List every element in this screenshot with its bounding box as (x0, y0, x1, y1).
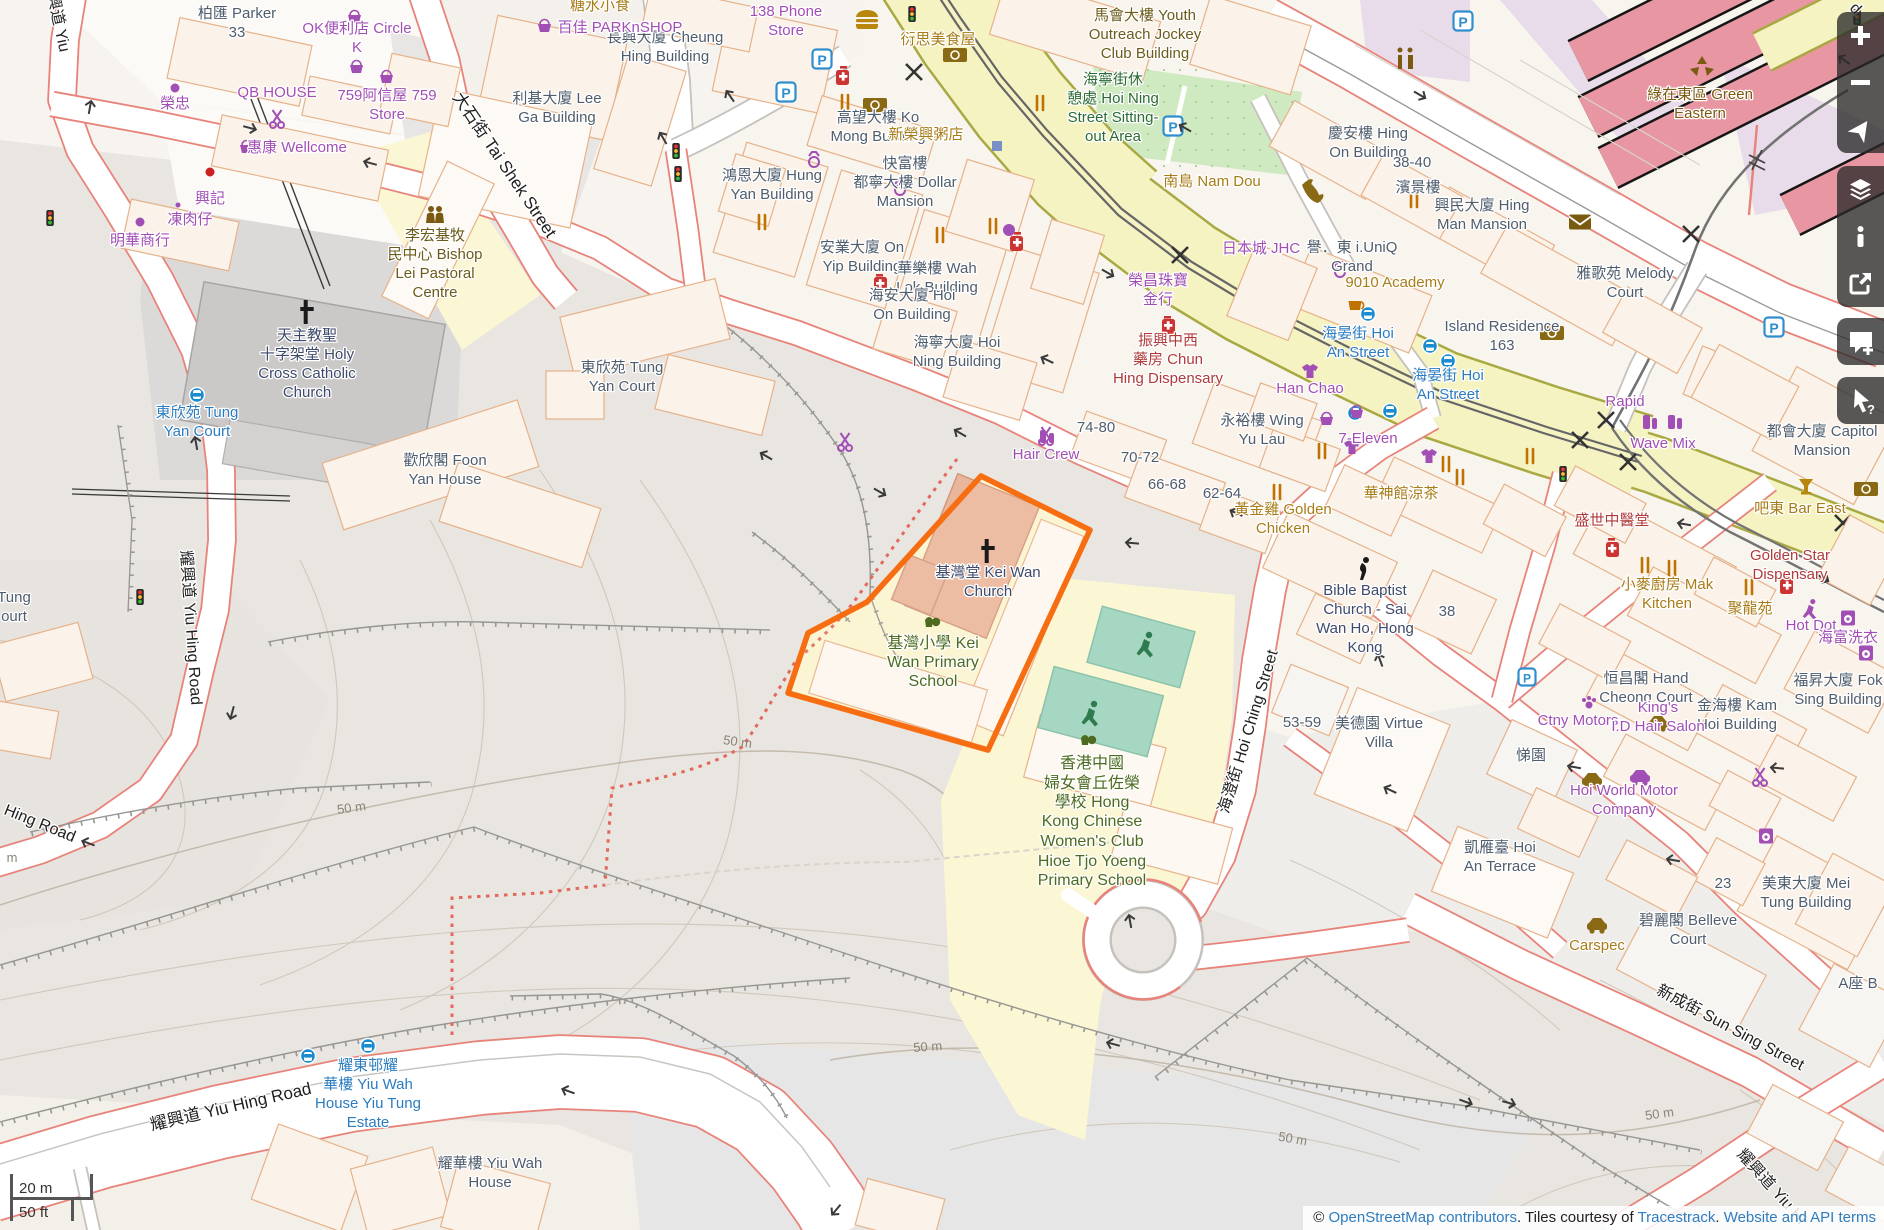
svg-text:憩處 Hoi Ning: 憩處 Hoi Ning (1067, 90, 1159, 107)
svg-text:Club Building: Club Building (1101, 45, 1189, 62)
svg-text:An Street: An Street (1417, 386, 1480, 403)
svg-text:Ning Building: Ning Building (913, 353, 1001, 370)
svg-text:金海樓 Kam: 金海樓 Kam (1697, 697, 1777, 714)
svg-text:Church: Church (283, 384, 331, 401)
svg-text:?: ? (1867, 402, 1875, 416)
svg-text:美德園 Virtue: 美德園 Virtue (1335, 714, 1423, 732)
svg-text:馬會大樓 Youth: 馬會大樓 Youth (1094, 7, 1196, 24)
svg-text:A座 B: A座 B (1838, 975, 1877, 992)
svg-text:Dispensary: Dispensary (1752, 566, 1828, 583)
svg-text:Island Residence: Island Residence (1444, 318, 1559, 335)
svg-text:榮昌珠寶: 榮昌珠寶 (1128, 271, 1188, 289)
svg-text:振興中西: 振興中西 (1138, 332, 1198, 349)
svg-text:Chicken: Chicken (1256, 520, 1310, 537)
svg-text:23: 23 (1715, 875, 1732, 892)
svg-text:138 Phone: 138 Phone (750, 3, 823, 20)
svg-text:Yan House: Yan House (408, 471, 481, 488)
svg-text:I.D Hair Salon: I.D Hair Salon (1611, 718, 1704, 735)
svg-text:Yip Building: Yip Building (823, 258, 902, 275)
svg-text:海晏街 Hoi: 海晏街 Hoi (1412, 367, 1484, 384)
svg-text:P: P (1769, 320, 1778, 336)
svg-text:Hing Dispensary: Hing Dispensary (1113, 370, 1224, 387)
svg-text:Church: Church (964, 583, 1012, 600)
svg-text:House Yiu Tung: House Yiu Tung (315, 1095, 421, 1112)
svg-text:歡欣閣 Foon: 歡欣閣 Foon (403, 452, 486, 469)
svg-text:凍肉仔: 凍肉仔 (167, 211, 212, 228)
svg-text:海寧大廈 Hoi: 海寧大廈 Hoi (914, 333, 1001, 351)
svg-text:An Terrace: An Terrace (1464, 858, 1536, 875)
svg-text:Mansion: Mansion (1794, 442, 1851, 459)
svg-text:Street Sitting-: Street Sitting- (1068, 109, 1159, 126)
svg-text:Cross Catholic: Cross Catholic (258, 365, 356, 382)
svg-text:out Area: out Area (1085, 128, 1142, 145)
svg-text:華樓 Yiu Wah: 華樓 Yiu Wah (323, 1076, 413, 1093)
svg-text:李宏基牧: 李宏基牧 (405, 227, 465, 244)
svg-text:Centre: Centre (412, 284, 457, 301)
svg-text:高望大樓 Ko: 高望大樓 Ko (837, 109, 920, 126)
svg-text:Hair Crew: Hair Crew (1013, 446, 1080, 463)
svg-text:33: 33 (229, 24, 246, 41)
svg-text:婦女會丘佐榮: 婦女會丘佐榮 (1044, 773, 1140, 792)
svg-text:Carspec: Carspec (1569, 937, 1625, 954)
svg-text:基灣堂 Kei Wan: 基灣堂 Kei Wan (935, 564, 1040, 581)
svg-text:50 m: 50 m (913, 1038, 943, 1055)
svg-text:凱雁臺 Hoi: 凱雁臺 Hoi (1464, 839, 1536, 856)
svg-text:Hoi Building: Hoi Building (1697, 716, 1777, 733)
svg-text:Store: Store (768, 22, 804, 39)
svg-text:66-68: 66-68 (1148, 476, 1186, 493)
svg-text:都會大廈 Capitol: 都會大廈 Capitol (1767, 422, 1878, 440)
svg-text:濱景樓: 濱景樓 (1395, 179, 1440, 196)
svg-text:Wan Ho, Hong: Wan Ho, Hong (1316, 620, 1414, 637)
svg-text:Golden Star: Golden Star (1750, 547, 1830, 564)
svg-text:衍思美食屋: 衍思美食屋 (900, 31, 975, 48)
svg-text:東欣苑 Tung: 東欣苑 Tung (156, 404, 239, 421)
svg-text:Bible Baptist: Bible Baptist (1323, 582, 1407, 599)
svg-text:On Building: On Building (873, 306, 951, 323)
svg-text:新榮興粥店: 新榮興粥店 (888, 126, 963, 143)
svg-text:快富樓: 快富樓 (882, 154, 927, 172)
svg-text:70-72: 70-72 (1121, 449, 1159, 466)
svg-text:Eastern: Eastern (1674, 105, 1726, 122)
svg-text:福昇大廈 Fok: 福昇大廈 Fok (1793, 671, 1883, 689)
svg-text:碧麗閣 Belleve: 碧麗閣 Belleve (1639, 912, 1737, 929)
svg-text:安業大廈 On: 安業大廈 On (820, 238, 904, 256)
svg-text:Tung Building: Tung Building (1760, 894, 1851, 911)
svg-text:惠康 Wellcome: 惠康 Wellcome (247, 139, 347, 156)
svg-text:m: m (7, 850, 18, 865)
svg-text:永裕樓 Wing: 永裕樓 Wing (1220, 412, 1303, 429)
svg-text:Tung: Tung (0, 589, 31, 606)
svg-text:Yan Building: Yan Building (730, 186, 813, 203)
svg-text:天主教聖: 天主教聖 (277, 327, 337, 344)
svg-text:小麥廚房 Mak: 小麥廚房 Mak (1621, 575, 1714, 593)
svg-text:Ctny Motors: Ctny Motors (1538, 712, 1619, 729)
svg-text:Outreach Jockey: Outreach Jockey (1089, 26, 1202, 43)
svg-text:金行: 金行 (1143, 291, 1173, 308)
svg-text:ourt: ourt (1, 608, 28, 625)
svg-text:Man Mansion: Man Mansion (1437, 216, 1527, 233)
svg-text:50 ft: 50 ft (19, 1204, 49, 1221)
svg-text:Yu Lau: Yu Lau (1239, 431, 1286, 448)
svg-text:74-80: 74-80 (1077, 419, 1115, 436)
svg-text:Church - Sai: Church - Sai (1323, 601, 1406, 618)
svg-text:藥房 Chun: 藥房 Chun (1133, 351, 1203, 368)
svg-text:P: P (817, 52, 826, 68)
svg-text:日本城 JHC: 日本城 JHC (1222, 240, 1301, 257)
svg-text:House: House (468, 1174, 511, 1191)
svg-text:Hioe Tjo Yoeng: Hioe Tjo Yoeng (1038, 853, 1146, 870)
svg-text:P: P (1168, 119, 1177, 135)
svg-text:Hing Building: Hing Building (621, 48, 709, 65)
svg-text:Kong: Kong (1347, 639, 1382, 656)
svg-text:School: School (909, 673, 958, 690)
svg-text:9010 Academy: 9010 Academy (1345, 274, 1445, 291)
svg-text:P: P (781, 85, 790, 101)
svg-text:7-Eleven: 7-Eleven (1338, 430, 1397, 447)
svg-text:Mansion: Mansion (877, 193, 934, 210)
svg-text:譽．東 i.UniQ: 譽．東 i.UniQ (1307, 239, 1398, 256)
svg-text:雅歌苑 Melody: 雅歌苑 Melody (1576, 265, 1674, 282)
svg-text:759阿信屋 759: 759阿信屋 759 (337, 87, 436, 104)
svg-text:悌園: 悌園 (1516, 747, 1546, 764)
svg-text:Wan Primary: Wan Primary (887, 654, 979, 671)
svg-text:都寧大樓 Dollar: 都寧大樓 Dollar (853, 174, 956, 191)
svg-text:吧東 Bar East: 吧東 Bar East (1754, 500, 1847, 517)
svg-text:綠在東區 Green: 綠在東區 Green (1647, 86, 1753, 103)
svg-text:53-59: 53-59 (1283, 714, 1321, 731)
svg-text:基灣小學 Kei: 基灣小學 Kei (887, 634, 979, 652)
svg-text:香港中國: 香港中國 (1060, 754, 1124, 772)
svg-text:Estate: Estate (347, 1114, 390, 1131)
svg-text:興記: 興記 (195, 190, 225, 207)
svg-text:Grand: Grand (1331, 258, 1373, 275)
svg-text:海寧街休: 海寧街休 (1083, 71, 1143, 88)
svg-text:慶安樓 Hing: 慶安樓 Hing (1328, 125, 1408, 142)
svg-text:十字架堂 Holy: 十字架堂 Holy (260, 346, 355, 363)
svg-text:Yan Court: Yan Court (589, 378, 656, 395)
svg-text:King's: King's (1638, 699, 1678, 716)
svg-text:榮忠: 榮忠 (160, 95, 190, 112)
svg-text:Hoi World Motor: Hoi World Motor (1570, 782, 1678, 799)
svg-text:Court: Court (1607, 284, 1645, 301)
svg-text:38: 38 (1439, 603, 1456, 620)
svg-text:南島 Nam Dou: 南島 Nam Dou (1163, 173, 1261, 190)
svg-text:海富洗衣: 海富洗衣 (1818, 628, 1878, 646)
svg-text:Court: Court (1670, 931, 1708, 948)
svg-text:鴻恩大廈 Hung: 鴻恩大廈 Hung (722, 166, 822, 184)
svg-text:62-64: 62-64 (1203, 485, 1241, 502)
svg-text:聚龍苑: 聚龍苑 (1727, 600, 1772, 617)
svg-text:民中心 Bishop: 民中心 Bishop (387, 246, 482, 263)
svg-text:P: P (1458, 14, 1467, 30)
svg-text:耀華樓 Yiu Wah: 耀華樓 Yiu Wah (438, 1155, 543, 1172)
svg-text:163: 163 (1489, 337, 1514, 354)
svg-text:東欣苑 Tung: 東欣苑 Tung (581, 359, 664, 376)
svg-text:OK便利店 Circle: OK便利店 Circle (302, 20, 411, 37)
svg-text:Store: Store (369, 106, 405, 123)
svg-text:20 m: 20 m (19, 1180, 52, 1197)
svg-text:學校 Hong: 學校 Hong (1055, 793, 1130, 811)
svg-text:恒昌閣 Hand: 恒昌閣 Hand (1603, 670, 1688, 687)
svg-text:Sing Building: Sing Building (1794, 691, 1882, 708)
svg-text:百佳 PARKnSHOP: 百佳 PARKnSHOP (558, 19, 683, 36)
svg-text:Wave Mix: Wave Mix (1630, 435, 1696, 452)
svg-text:海晏街 Hoi: 海晏街 Hoi (1322, 325, 1394, 342)
svg-text:糖水小食: 糖水小食 (570, 0, 630, 14)
svg-text:黃金雞 Golden: 黃金雞 Golden (1234, 501, 1332, 518)
svg-text:Villa: Villa (1365, 734, 1394, 751)
svg-text:Primary School: Primary School (1038, 872, 1146, 889)
svg-text:K: K (352, 39, 362, 56)
svg-text:38-40: 38-40 (1393, 154, 1431, 171)
svg-text:海安大廈 Hoi: 海安大廈 Hoi (869, 286, 956, 304)
svg-text:柏匯 Parker: 柏匯 Parker (198, 5, 276, 22)
svg-text:Women's Club: Women's Club (1040, 833, 1143, 850)
svg-text:P: P (1523, 671, 1531, 685)
svg-text:興民大廈 Hing: 興民大廈 Hing (1434, 196, 1529, 214)
svg-text:明華商行: 明華商行 (110, 232, 170, 249)
svg-text:華樂樓 Wah: 華樂樓 Wah (897, 260, 976, 277)
svg-text:Rapid: Rapid (1605, 393, 1644, 410)
svg-text:Kitchen: Kitchen (1642, 595, 1692, 612)
svg-text:Ga Building: Ga Building (518, 109, 596, 126)
svg-text:盛世中醫堂: 盛世中醫堂 (1574, 512, 1649, 529)
svg-text:美東大廈 Mei: 美東大廈 Mei (1762, 874, 1850, 892)
svg-text:華神館涼茶: 華神館涼茶 (1363, 485, 1438, 502)
svg-text:Yan Court: Yan Court (164, 423, 231, 440)
svg-text:Kong Chinese: Kong Chinese (1042, 813, 1143, 830)
svg-text:An Street: An Street (1327, 344, 1390, 361)
svg-text:利基大廈 Lee: 利基大廈 Lee (512, 89, 601, 107)
svg-text:Company: Company (1592, 801, 1657, 818)
svg-text:Han Chao: Han Chao (1276, 380, 1344, 397)
svg-text:QB HOUSE: QB HOUSE (237, 84, 316, 101)
svg-text:耀東邨耀: 耀東邨耀 (338, 1057, 398, 1074)
svg-text:Lei Pastoral: Lei Pastoral (395, 265, 474, 282)
